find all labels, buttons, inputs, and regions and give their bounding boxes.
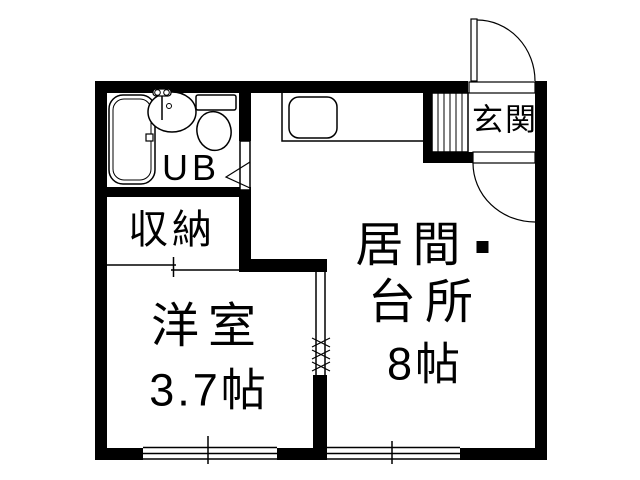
western-room-size-label: 3.7帖 [149, 368, 269, 413]
wall-left [95, 81, 107, 460]
living-kitchen-name1: 居間 [355, 222, 469, 270]
wall-ub-bottom [95, 187, 251, 197]
wall-top [95, 81, 468, 93]
entrance-label: 玄関 [472, 105, 538, 136]
entrance-door-sill [469, 82, 535, 93]
floorplan-drawing [0, 0, 640, 480]
wall-right [535, 81, 547, 460]
entrance-door-leaf [471, 19, 477, 81]
opening-zigzag-mark [312, 338, 330, 371]
wall-bottom-right [460, 448, 547, 460]
washbasin-icon [148, 89, 196, 132]
middle-dot-icon [477, 241, 489, 253]
entrance-door-arc [477, 20, 535, 81]
wall-bottom-left [95, 448, 143, 460]
toilet-icon [193, 95, 236, 154]
living-kitchen-size-label: 8帖 [387, 342, 463, 387]
entrance-door [469, 19, 535, 93]
living-kitchen-label-line1: 居間 [355, 222, 488, 270]
unit-bath-label: UB [162, 150, 220, 186]
wall-entrance-left [423, 93, 432, 152]
closet-label: 収納 [128, 210, 216, 250]
closet-sliding-door [107, 257, 239, 277]
shoe-cabinet-icon [432, 93, 468, 152]
wall-western-right-lower [313, 375, 327, 452]
floorplan-canvas: UB 玄関 収納 洋室 3.7帖 居間 台所 8帖 [0, 0, 640, 480]
entrance-step-sill [473, 152, 535, 163]
room-opening-passage [312, 272, 330, 375]
hall-door [473, 152, 535, 222]
ub-door [226, 141, 250, 190]
window-western-room [143, 436, 277, 464]
living-kitchen-label-line2: 台所 [368, 279, 482, 327]
wall-ub-right-upper [239, 93, 251, 141]
wall-living-western-horizontal [239, 259, 327, 272]
kitchen-sink-icon [289, 97, 337, 138]
window-living-room [327, 441, 460, 464]
western-room-label: 洋室 [151, 303, 265, 351]
wall-entrance-stub [423, 152, 473, 163]
hall-door-arc [473, 163, 535, 222]
